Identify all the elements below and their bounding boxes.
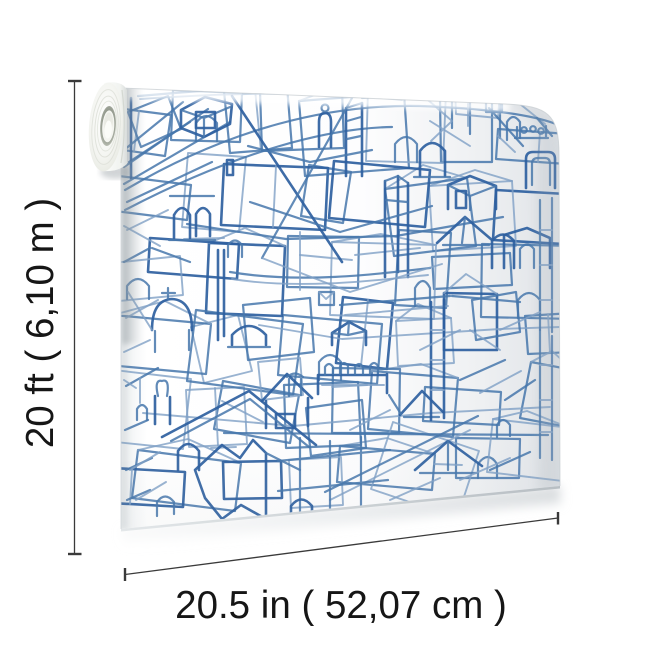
svg-text:20 ft ( 6,10 m ): 20 ft ( 6,10 m ) [19,198,62,448]
svg-text:20.5 in ( 52,07 cm ): 20.5 in ( 52,07 cm ) [175,584,507,627]
